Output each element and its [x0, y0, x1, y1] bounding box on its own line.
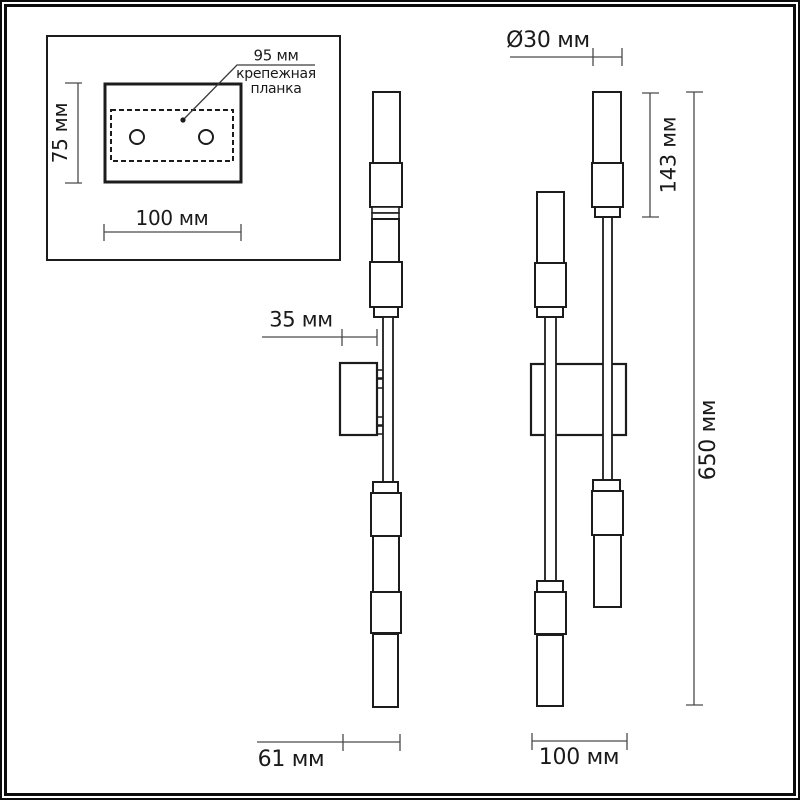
- front-left-bottom-block: [535, 592, 566, 634]
- front-right-bottom-glass: [594, 535, 621, 607]
- front-left-top-block: [535, 263, 566, 307]
- front-right-bottom-collar: [593, 480, 620, 491]
- side-bottom-collar: [373, 482, 398, 493]
- front-width-label: 100 мм: [539, 747, 619, 769]
- front-left-bottom-glass: [537, 635, 563, 706]
- mounting-plate-label: крепежная планка: [236, 67, 316, 97]
- side-bottom-glass-tube: [373, 634, 398, 707]
- mounting-plate-label-line2: планка: [236, 82, 316, 97]
- side-view: [340, 92, 402, 707]
- side-bottom-block-lower: [371, 592, 401, 633]
- front-view: [531, 92, 626, 706]
- side-mid-tube: [372, 219, 399, 262]
- front-right-top-glass: [593, 92, 621, 163]
- front-diameter-label: Ø30 мм: [506, 30, 590, 52]
- side-wall-offset-label: 35 мм: [269, 310, 333, 331]
- side-top-block: [370, 163, 402, 207]
- front-shade-height-label: 143 мм: [659, 117, 680, 194]
- leader-dot: [180, 117, 185, 122]
- front-right-top-block: [592, 163, 623, 207]
- side-bottom-tube: [373, 536, 399, 592]
- side-mid-block: [370, 262, 402, 307]
- side-top-glass-tube: [373, 92, 400, 163]
- front-total-height-label: 650 мм: [698, 400, 720, 480]
- inset-height-label: 75 мм: [50, 103, 70, 163]
- front-right-rod: [603, 217, 612, 480]
- mounting-plate-label-line1: крепежная: [236, 67, 316, 82]
- front-left-rod: [545, 317, 556, 581]
- side-top-collar: [374, 307, 398, 317]
- front-left-bottom-collar: [537, 581, 563, 592]
- side-depth-label: 61 мм: [258, 749, 325, 771]
- front-left-top-glass: [537, 192, 564, 263]
- mounting-hole-right: [199, 130, 213, 144]
- inset-hole-spacing-label: 95 мм: [254, 49, 299, 64]
- side-band-upper: [372, 207, 399, 213]
- front-right-bottom-block: [592, 491, 623, 535]
- side-wall-offset-dimension: [262, 329, 377, 346]
- side-stem-rod: [383, 317, 393, 482]
- mounting-plate-outline: [105, 84, 241, 182]
- side-bottom-block-upper: [371, 493, 401, 536]
- lamp-dimension-sheet: { "colors": { "ink": "#1c1c1c", "dimensi…: [0, 0, 800, 800]
- front-left-top-collar: [537, 307, 563, 317]
- side-wall-box: [340, 363, 377, 435]
- inset-width-label: 100 мм: [136, 208, 209, 228]
- mounting-hole-left: [130, 130, 144, 144]
- front-total-height-dimension: [686, 92, 703, 705]
- front-right-top-collar: [595, 207, 620, 217]
